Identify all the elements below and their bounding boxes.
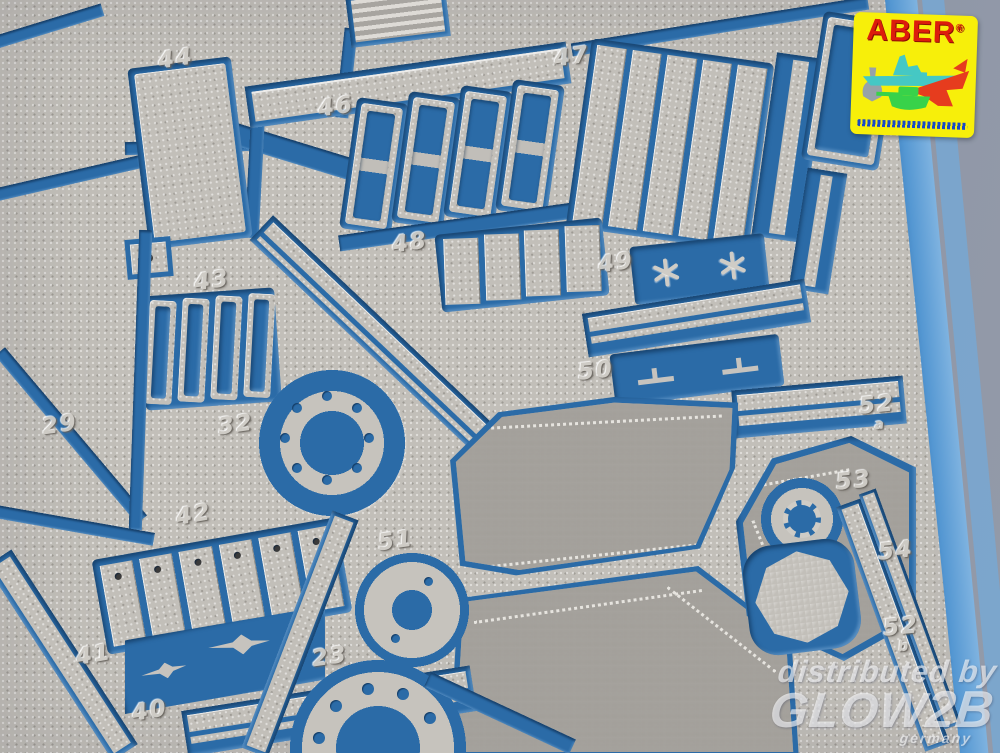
bolt-hole: [364, 433, 374, 443]
tank-icon: [888, 95, 930, 110]
part-44-plate: [127, 56, 252, 249]
grille-slat: [564, 225, 601, 292]
small-silhouette-part: [140, 658, 188, 683]
louver-opening: [217, 302, 237, 395]
rivet-row: [474, 414, 721, 430]
plate-with-hole: [100, 560, 147, 647]
aber-logo: ABER®: [850, 12, 978, 138]
bolt-hole: [391, 634, 400, 643]
bolt-hole: [292, 463, 302, 473]
asterisk-part: [718, 250, 749, 281]
bolt-hole: [322, 391, 332, 401]
louver-ring: [177, 298, 209, 403]
part-number-47: 47: [553, 44, 592, 72]
bolt-hole: [424, 577, 433, 586]
louver-slats: [351, 0, 445, 42]
sprocket-teeth: [783, 500, 821, 538]
plate-hole: [233, 551, 241, 559]
frame-opening: [405, 105, 448, 216]
bolt-hole: [352, 463, 362, 473]
logo-address-strip: [857, 119, 967, 130]
part-number-51: 51: [377, 528, 416, 556]
bolt-hole: [280, 433, 290, 443]
louver-ring: [144, 300, 176, 405]
frame-opening: [353, 111, 396, 222]
plate-with-hole: [139, 553, 186, 640]
bolt-hole: [424, 712, 436, 724]
part-54-shield: [740, 536, 865, 659]
part-number-48: 48: [391, 230, 430, 258]
battleship-icon: [893, 54, 928, 76]
watermark-brand: GLOW2Bgermany: [629, 686, 995, 745]
bolt-hole: [330, 700, 342, 712]
plate-with-hole: [218, 539, 265, 626]
tank-icon: [898, 86, 918, 96]
grille-slat: [443, 238, 480, 305]
part-number-42: 42: [174, 501, 213, 530]
rivet-row: [474, 589, 703, 624]
part-number-46: 46: [317, 94, 356, 122]
louver-opening: [184, 304, 204, 397]
louver-opening: [151, 306, 171, 399]
etched-strip: [803, 175, 832, 287]
part-number-44: 44: [157, 46, 196, 74]
part-number-41: 41: [74, 641, 113, 670]
brand-name: ABER: [866, 13, 956, 49]
part-number-text: 52: [858, 390, 897, 420]
plate-hole: [154, 565, 162, 573]
registered-mark: ®: [955, 22, 965, 34]
tee-part: [636, 365, 674, 385]
tee-part: [720, 355, 758, 375]
part-number-40: 40: [130, 697, 169, 726]
bolt-hole: [362, 683, 374, 695]
logo-art: [854, 45, 974, 121]
part-number-52a: 52a: [858, 392, 898, 434]
part-number-23: 23: [311, 644, 350, 672]
part-number-text: 52: [882, 612, 921, 642]
bolt-hole: [352, 403, 362, 413]
frame-opening: [457, 99, 500, 210]
small-silhouette-part: [207, 632, 271, 658]
part-number-43: 43: [193, 268, 232, 296]
bolt-hole: [292, 403, 302, 413]
shield-surface: [750, 546, 855, 649]
fighter-jet-icon: [953, 58, 967, 72]
louver-ring: [210, 295, 242, 400]
aber-logo-wordmark: ABER®: [855, 15, 976, 49]
part-number-54: 54: [877, 538, 915, 565]
bolt-hole: [322, 475, 332, 485]
part-number-52b: 52b: [882, 614, 922, 656]
part-number-29: 29: [41, 412, 80, 440]
part-number-32: 32: [217, 412, 256, 440]
plate-with-hole: [179, 546, 226, 633]
part-32-bolt-ring: [258, 369, 406, 517]
part-number-49: 49: [597, 250, 636, 278]
distributor-watermark: distributed by GLOW2Bgermany: [629, 657, 998, 745]
plate-hole: [194, 558, 202, 566]
grille-slat: [483, 234, 520, 301]
bolt-hole: [313, 732, 325, 744]
part-number-50: 50: [577, 358, 615, 385]
etched-plate: [134, 63, 246, 243]
part-number-53: 53: [835, 468, 873, 495]
grille-slat: [524, 229, 561, 296]
plate-hole: [114, 572, 122, 580]
asterisk-part: [651, 257, 682, 288]
photo-etched-fret-photo: 44 46 47 48 43 49 50 29 32 52a 42 51 53 …: [0, 0, 1000, 753]
bolt-hole: [397, 688, 409, 700]
part-23-flange: [290, 660, 466, 753]
part-51-ring: [354, 552, 470, 668]
frame-opening: [509, 93, 552, 204]
plate-hole: [273, 544, 281, 552]
